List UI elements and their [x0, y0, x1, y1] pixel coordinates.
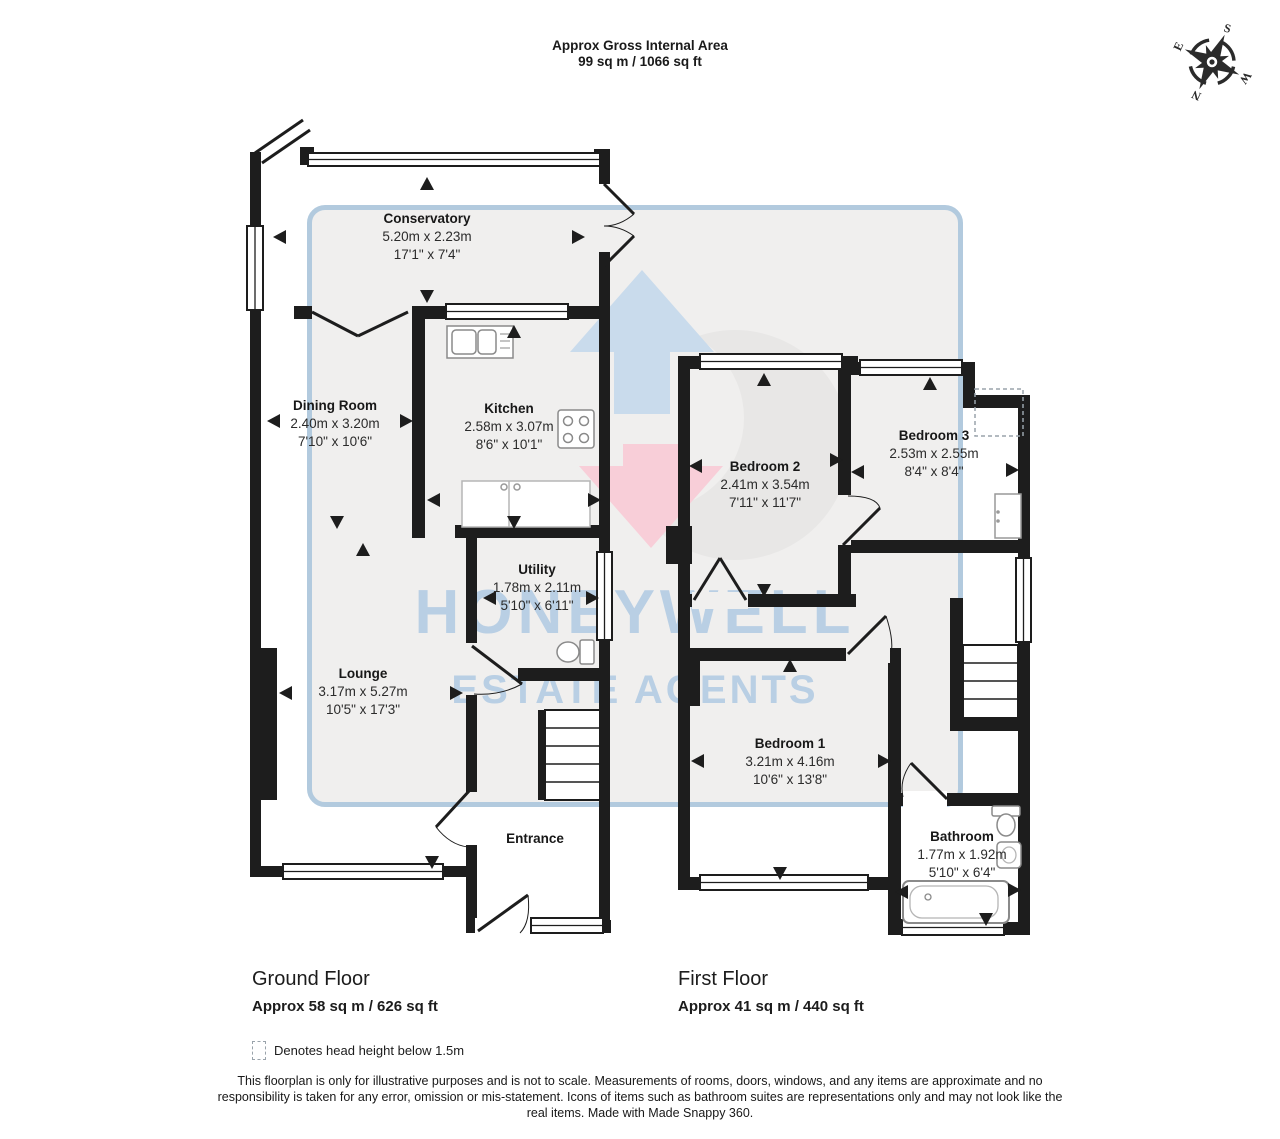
room-metric: 2.58m x 3.07m	[464, 418, 553, 436]
room-imperial: 5'10" x 6'4"	[917, 864, 1006, 882]
first-floor-area: Approx 41 sq m / 440 sq ft	[678, 998, 864, 1015]
watermark-brand: HONEYWELL	[307, 581, 963, 645]
ground-floor-title-block: Ground Floor Approx 58 sq m / 626 sq ft	[252, 968, 438, 1015]
ground-floor-title: Ground Floor	[252, 968, 438, 991]
header-title: Approx Gross Internal Area	[0, 38, 1280, 54]
compass-n-label: N	[1189, 87, 1203, 103]
room-metric: 5.20m x 2.23m	[382, 228, 471, 246]
header-subtitle: 99 sq m / 1066 sq ft	[0, 54, 1280, 70]
room-metric: 2.41m x 3.54m	[720, 476, 809, 494]
room-imperial: 7'11" x 11'7"	[720, 494, 809, 512]
room-imperial: 17'1" x 7'4"	[382, 246, 471, 264]
room-label-utility: Utility 1.78m x 2.11m 5'10" x 6'11"	[493, 561, 581, 615]
room-imperial: 7'10" x 10'6"	[290, 433, 379, 451]
first-staircase	[963, 645, 1018, 718]
first-floor-title: First Floor	[678, 968, 864, 991]
head-height-legend-swatch	[252, 1041, 266, 1060]
head-height-legend-text: Denotes head height below 1.5m	[274, 1043, 464, 1058]
room-label-bedroom-3: Bedroom 3 2.53m x 2.55m 8'4" x 8'4"	[889, 427, 978, 481]
room-imperial: 10'5" x 17'3"	[318, 701, 407, 719]
room-metric: 3.21m x 4.16m	[745, 753, 834, 771]
room-label-conservatory: Conservatory 5.20m x 2.23m 17'1" x 7'4"	[382, 210, 471, 264]
floorplan-page: Approx Gross Internal Area 99 sq m / 106…	[0, 0, 1280, 1139]
ground-floor-area: Approx 58 sq m / 626 sq ft	[252, 998, 438, 1015]
room-metric: 2.53m x 2.55m	[889, 445, 978, 463]
room-imperial: 10'6" x 13'8"	[745, 771, 834, 789]
room-imperial: 8'4" x 8'4"	[889, 463, 978, 481]
compass-s-label: S	[1222, 21, 1232, 36]
head-height-legend: Denotes head height below 1.5m	[252, 1041, 464, 1060]
room-imperial: 5'10" x 6'11"	[493, 597, 581, 615]
room-imperial: 8'6" x 10'1"	[464, 436, 553, 454]
room-label-bedroom-1: Bedroom 1 3.21m x 4.16m 10'6" x 13'8"	[745, 735, 834, 789]
compass-w-label: W	[1236, 69, 1254, 87]
room-label-dining-room: Dining Room 2.40m x 3.20m 7'10" x 10'6"	[290, 397, 379, 451]
room-label-bathroom: Bathroom 1.77m x 1.92m 5'10" x 6'4"	[917, 828, 1006, 882]
room-metric: 2.40m x 3.20m	[290, 415, 379, 433]
room-label-entrance: Entrance	[506, 830, 564, 848]
first-floor-title-block: First Floor Approx 41 sq m / 440 sq ft	[678, 968, 864, 1015]
bathtub-icon	[903, 881, 1009, 923]
head-height-area	[975, 389, 1023, 436]
gross-internal-area-header: Approx Gross Internal Area 99 sq m / 106…	[0, 38, 1280, 70]
room-metric: 1.77m x 1.92m	[917, 846, 1006, 864]
room-label-kitchen: Kitchen 2.58m x 3.07m 8'6" x 10'1"	[464, 400, 553, 454]
room-label-lounge: Lounge 3.17m x 5.27m 10'5" x 17'3"	[318, 665, 407, 719]
room-metric: 1.78m x 2.11m	[493, 579, 581, 597]
bedroom3-closet	[995, 494, 1021, 538]
watermark-text: HONEYWELL ESTATE AGENTS	[307, 205, 963, 711]
room-metric: 3.17m x 5.27m	[318, 683, 407, 701]
room-label-bedroom-2: Bedroom 2 2.41m x 3.54m 7'11" x 11'7"	[720, 458, 809, 512]
disclaimer-text: This floorplan is only for illustrative …	[209, 1073, 1071, 1121]
